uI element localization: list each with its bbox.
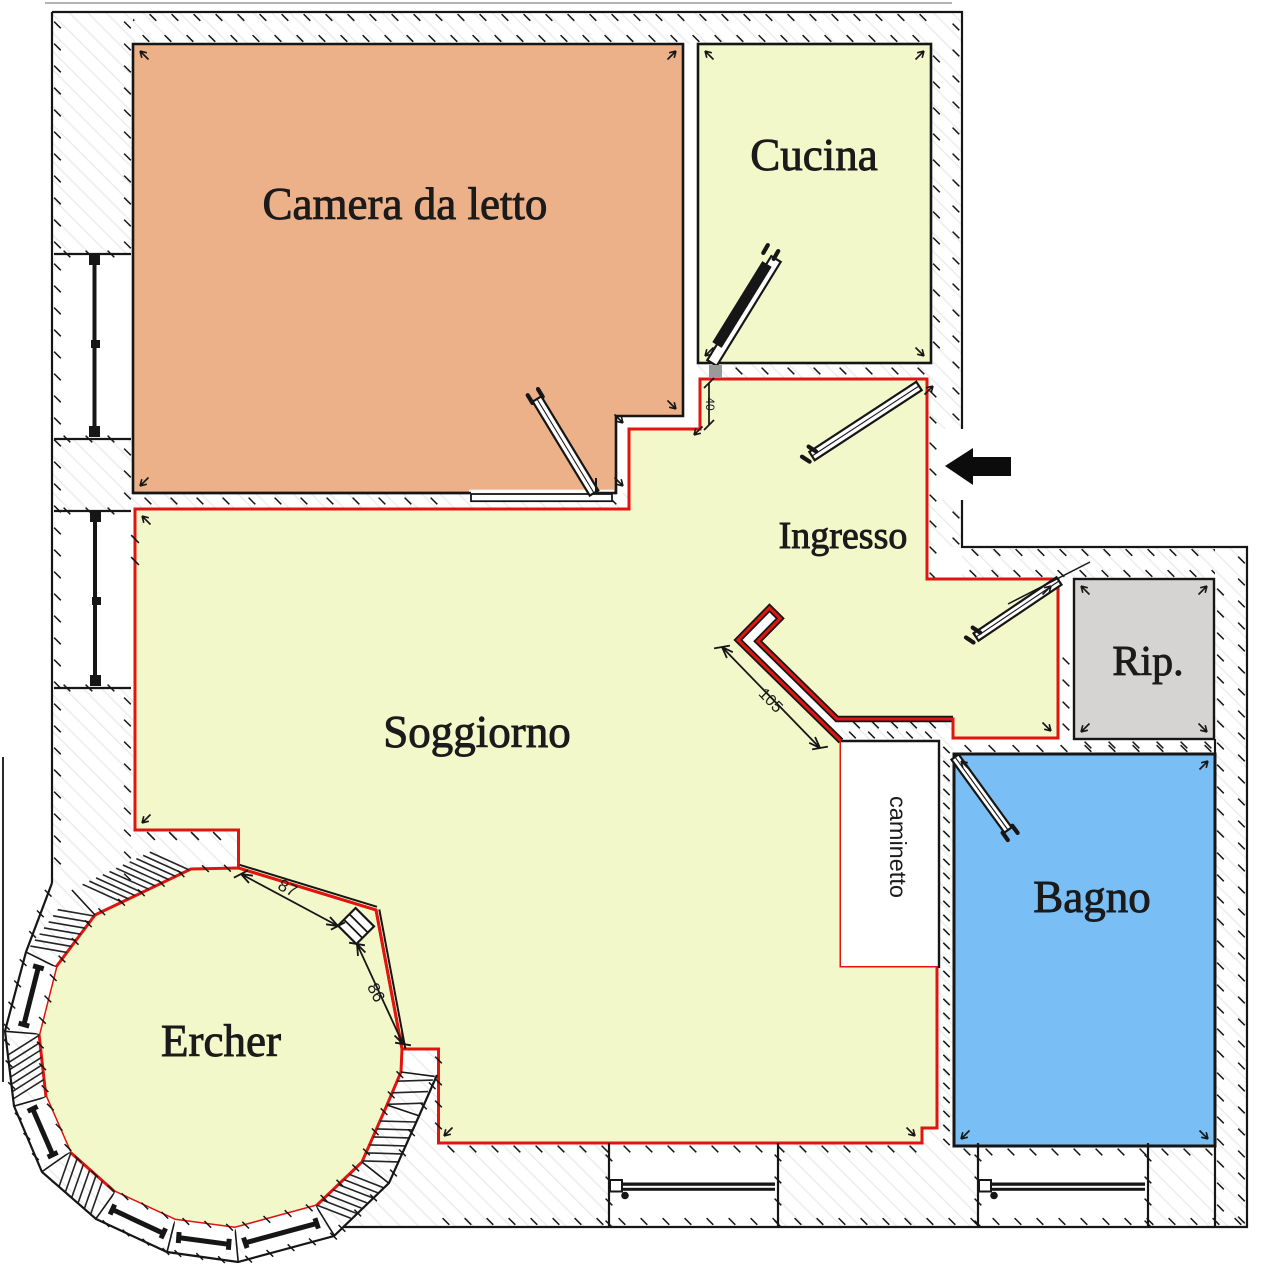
svg-text:Ingresso: Ingresso (779, 515, 908, 557)
svg-text:Rip.: Rip. (1112, 639, 1183, 685)
svg-text:Bagno: Bagno (1033, 872, 1151, 922)
svg-text:Camera da letto: Camera da letto (263, 179, 548, 229)
svg-text:Cucina: Cucina (750, 130, 877, 180)
svg-text:Ercher: Ercher (161, 1016, 281, 1066)
svg-text:Soggiorno: Soggiorno (383, 707, 571, 757)
svg-text:40: 40 (703, 397, 717, 411)
svg-text:caminetto: caminetto (885, 796, 911, 898)
